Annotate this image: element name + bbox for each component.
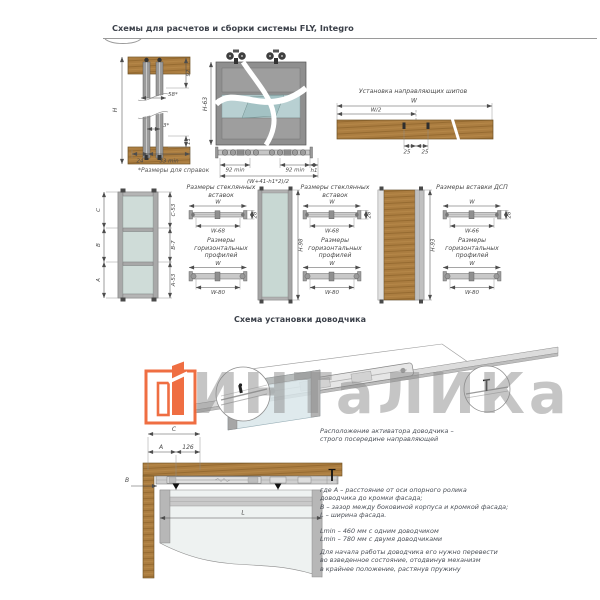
set1-w-sub-top: W-68 xyxy=(211,229,225,235)
header-rule xyxy=(103,39,597,44)
dim-label-33min: 33 min xyxy=(159,159,179,165)
plan-dim-c: C xyxy=(172,426,177,433)
plan-dim-b: B xyxy=(125,477,129,484)
instruction-page: Схемы для расчетов и сборки системы FLY,… xyxy=(0,0,600,600)
note-legend: где A – расстояние от оси опорного ролик… xyxy=(320,486,510,519)
set2-title-top: Размеры стеклянных вставок xyxy=(297,184,373,199)
set3-w-sub-bot: W-80 xyxy=(465,290,479,296)
set1-title-bottom: Размеры горизонтальных профилей xyxy=(183,237,259,260)
set1-w-top: W xyxy=(215,200,221,206)
dim-label-3: 3* xyxy=(163,123,169,129)
dim-label-25b: 25 xyxy=(422,150,429,156)
set2-w-sub-bot: W-80 xyxy=(325,290,339,296)
note-line: Lmin – 780 мм с двумя доводчиками xyxy=(320,535,510,543)
dim-label-b7: B-7 xyxy=(171,240,177,250)
closer-3d-view xyxy=(146,344,558,430)
guide-pins-title: Установка направляющих шипов xyxy=(330,88,496,96)
drawing-canvas: H 92 58* 3* 11 24 33 min xyxy=(0,0,600,600)
note-line: Lmin – 460 мм с одним доводчиком xyxy=(320,527,510,535)
reference-footnote: *Размеры для справок xyxy=(138,167,209,174)
note-line: B – зазор между боковиной корпуса и кром… xyxy=(320,503,510,511)
callout-left xyxy=(216,367,270,421)
dim-label-24: 24 xyxy=(137,159,144,165)
note-line: во взведенное состояние, отодвинув механ… xyxy=(320,556,510,564)
set2-title-bottom: Размеры горизонтальных профилей xyxy=(297,237,373,260)
plan-dim-a: A xyxy=(158,444,163,451)
note-activator-position: Расположение активатора доводчика – стро… xyxy=(320,427,510,444)
dim-label-92min-a: 92 min xyxy=(225,168,245,174)
note-line: L – ширина фасада. xyxy=(320,511,510,519)
guide-pins-diagram: W W/2 25 25 xyxy=(337,98,493,156)
set3-28: 28 xyxy=(507,211,513,218)
set1-title-top: Размеры стеклянных вставок xyxy=(183,184,259,199)
dim-label-h: H xyxy=(112,107,119,112)
set3-w-top: W xyxy=(469,200,475,206)
closer-section-title: Схема установки доводчика xyxy=(150,315,450,324)
note-line: в крайнее положение, растянув пружину xyxy=(320,565,510,573)
set3-w-bot: W xyxy=(469,261,475,267)
note-line: Расположение активатора доводчика – xyxy=(320,427,510,435)
set2-28: 28 xyxy=(367,211,373,218)
set2-w-bot: W xyxy=(329,261,335,267)
dim-label-c: C xyxy=(96,208,102,212)
dim-label-c53: C-53 xyxy=(171,203,177,216)
dim-label-a: A xyxy=(96,278,102,283)
note-lmin: Lmin – 460 мм с одним доводчиком Lmin – … xyxy=(320,527,510,544)
note-line: Для начала работы доводчика его нужно пе… xyxy=(320,548,510,556)
dim-label-b: B xyxy=(96,243,102,247)
front-view-diagram: H-63 92 min 92 min h1 xyxy=(202,50,318,186)
dim-label-11: 11 xyxy=(186,138,192,145)
dim-label-h63: H-63 xyxy=(202,97,209,111)
dim-label-h1: h1 xyxy=(311,168,318,174)
set3-title-bottom: Размеры горизонтальных профилей xyxy=(434,237,510,260)
section-view-diagram: H 92 58* 3* 11 24 33 min xyxy=(112,57,192,165)
callout-right xyxy=(464,366,510,412)
door3-elevation: H-93 xyxy=(378,187,437,304)
note-arming: Для начала работы доводчика его нужно пе… xyxy=(320,548,510,573)
set1-w-sub-bot: W-80 xyxy=(211,290,225,296)
dim-label-92: 92 xyxy=(186,69,192,76)
set1-28: 28 xyxy=(253,211,259,218)
note-line: где A – расстояние от оси опорного ролик… xyxy=(320,486,510,494)
set3-w-sub-top: W-66 xyxy=(465,229,479,235)
note-line: доводчика до кромки фасада; xyxy=(320,494,510,502)
dim-label-25a: 25 xyxy=(404,150,411,156)
dim-label-a53: A-53 xyxy=(171,273,177,287)
dim-label-58: 58* xyxy=(168,92,178,98)
dim-label-w2: W/2 xyxy=(371,108,382,114)
plan-dim-126: 126 xyxy=(182,444,194,451)
set2-w-sub-top: W-68 xyxy=(325,229,339,235)
set3-title-top: Размеры вставки ДСП xyxy=(434,184,510,192)
brand-logo xyxy=(146,362,195,424)
dim-label-92min-b: 92 min xyxy=(285,168,305,174)
closer-plan-view: C A 126 B L xyxy=(125,426,342,578)
set2-w-top: W xyxy=(329,200,335,206)
set1-w-bot: W xyxy=(215,261,221,267)
plan-dim-l: L xyxy=(241,510,244,517)
door1-elevation: C B A C-53 B-7 A-53 xyxy=(96,189,177,302)
note-line: строго посередине направляющей xyxy=(320,435,510,443)
dim-label-w: W xyxy=(411,98,418,105)
